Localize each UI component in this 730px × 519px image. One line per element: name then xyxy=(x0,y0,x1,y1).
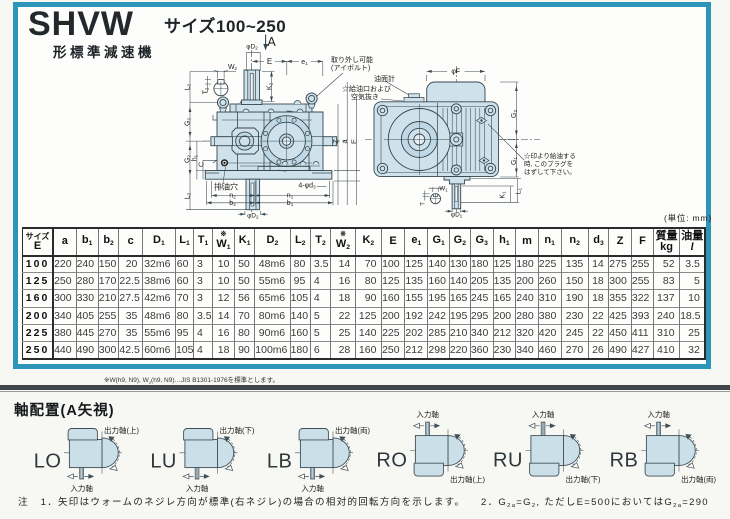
svg-text:入力軸: 入力軸 xyxy=(647,409,670,419)
svg-text:入力軸: 入力軸 xyxy=(532,409,555,419)
svg-text:入力軸: 入力軸 xyxy=(301,483,324,493)
svg-text:RO: RO xyxy=(376,449,407,471)
svg-text:RU: RU xyxy=(493,449,523,471)
svg-text:入力軸: 入力軸 xyxy=(70,483,93,493)
svg-text:入力軸: 入力軸 xyxy=(416,409,439,419)
svg-text:RB: RB xyxy=(610,449,639,471)
svg-text:出力軸(下): 出力軸(下) xyxy=(220,425,255,435)
svg-text:出力軸(両): 出力軸(両) xyxy=(335,425,370,435)
svg-text:出力軸(下): 出力軸(下) xyxy=(566,474,601,484)
svg-text:出力軸(両): 出力軸(両) xyxy=(681,474,716,484)
svg-text:LU: LU xyxy=(150,451,177,473)
svg-text:出力軸(上): 出力軸(上) xyxy=(450,474,485,484)
svg-text:入力軸: 入力軸 xyxy=(186,483,209,493)
svg-text:LB: LB xyxy=(267,451,292,473)
svg-text:出力軸(上): 出力軸(上) xyxy=(104,425,139,435)
svg-text:LO: LO xyxy=(34,451,62,473)
